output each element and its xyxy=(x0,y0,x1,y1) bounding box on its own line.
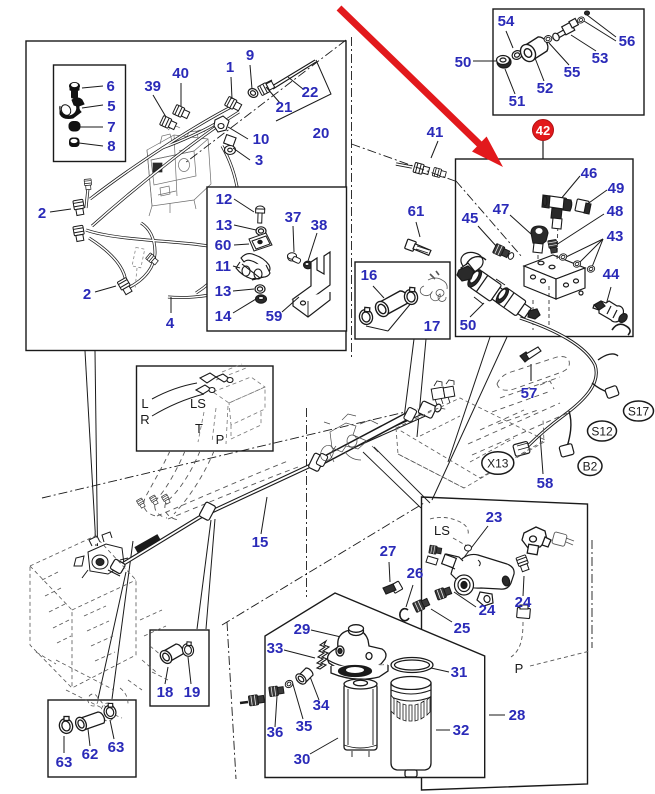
svg-text:23: 23 xyxy=(486,509,503,526)
svg-text:5: 5 xyxy=(107,98,115,115)
svg-text:2: 2 xyxy=(38,205,46,222)
svg-text:54: 54 xyxy=(498,13,515,30)
svg-text:50: 50 xyxy=(460,317,477,334)
svg-text:51: 51 xyxy=(509,93,526,110)
svg-text:LS: LS xyxy=(190,396,206,411)
svg-text:47: 47 xyxy=(493,201,510,218)
svg-text:59: 59 xyxy=(266,308,283,325)
svg-text:40: 40 xyxy=(172,65,189,82)
svg-text:58: 58 xyxy=(537,475,554,492)
svg-text:27: 27 xyxy=(380,543,397,560)
svg-text:3: 3 xyxy=(255,152,263,169)
svg-text:L: L xyxy=(141,396,148,411)
svg-text:49: 49 xyxy=(608,180,625,197)
svg-text:38: 38 xyxy=(311,217,328,234)
svg-text:20: 20 xyxy=(313,125,330,142)
svg-text:4: 4 xyxy=(166,315,175,332)
svg-text:60: 60 xyxy=(215,237,232,254)
svg-text:41: 41 xyxy=(427,124,444,141)
svg-text:16: 16 xyxy=(361,267,378,284)
svg-text:57: 57 xyxy=(521,385,538,402)
svg-text:15: 15 xyxy=(252,534,269,551)
svg-text:X13: X13 xyxy=(487,457,509,471)
svg-text:39: 39 xyxy=(144,78,161,95)
svg-text:S17: S17 xyxy=(628,405,650,419)
svg-text:9: 9 xyxy=(246,47,254,64)
svg-text:28: 28 xyxy=(509,707,526,724)
svg-text:34: 34 xyxy=(313,697,330,714)
svg-text:62: 62 xyxy=(82,746,99,763)
svg-text:LS: LS xyxy=(434,523,450,538)
svg-text:17: 17 xyxy=(424,318,441,335)
svg-text:S12: S12 xyxy=(591,425,613,439)
svg-text:63: 63 xyxy=(56,754,73,771)
svg-text:19: 19 xyxy=(184,684,201,701)
svg-text:32: 32 xyxy=(453,722,470,739)
svg-text:36: 36 xyxy=(267,724,284,741)
svg-text:1: 1 xyxy=(226,59,234,76)
svg-text:B2: B2 xyxy=(583,460,598,474)
svg-text:46: 46 xyxy=(581,165,598,182)
svg-text:7: 7 xyxy=(107,119,115,136)
svg-text:24: 24 xyxy=(515,594,532,611)
svg-text:11: 11 xyxy=(215,258,231,275)
svg-text:18: 18 xyxy=(157,684,174,701)
svg-text:P: P xyxy=(515,661,524,676)
svg-text:2: 2 xyxy=(83,286,91,303)
svg-text:P: P xyxy=(216,432,225,447)
svg-text:21: 21 xyxy=(276,99,293,116)
svg-text:25: 25 xyxy=(454,620,471,637)
svg-text:33: 33 xyxy=(267,640,284,657)
svg-text:50: 50 xyxy=(455,54,472,71)
svg-text:24: 24 xyxy=(479,602,496,619)
svg-text:56: 56 xyxy=(619,33,636,50)
svg-text:44: 44 xyxy=(603,266,620,283)
svg-text:30: 30 xyxy=(294,751,311,768)
svg-text:63: 63 xyxy=(108,739,125,756)
svg-text:48: 48 xyxy=(607,203,624,220)
svg-text:R: R xyxy=(140,412,149,427)
svg-text:13: 13 xyxy=(215,283,232,300)
svg-text:26: 26 xyxy=(407,565,424,582)
svg-text:29: 29 xyxy=(294,621,311,638)
svg-text:6: 6 xyxy=(107,78,115,95)
svg-text:13: 13 xyxy=(216,217,233,234)
svg-text:8: 8 xyxy=(107,138,115,155)
svg-text:31: 31 xyxy=(451,664,468,681)
svg-text:10: 10 xyxy=(253,131,270,148)
svg-text:42: 42 xyxy=(536,123,550,138)
svg-text:37: 37 xyxy=(285,209,302,226)
svg-text:22: 22 xyxy=(302,84,319,101)
svg-text:14: 14 xyxy=(215,308,232,325)
svg-text:45: 45 xyxy=(462,210,479,227)
svg-text:52: 52 xyxy=(537,80,554,97)
svg-text:53: 53 xyxy=(592,50,609,67)
svg-text:T: T xyxy=(195,421,203,436)
svg-text:43: 43 xyxy=(607,228,624,245)
svg-text:55: 55 xyxy=(564,64,581,81)
svg-text:35: 35 xyxy=(296,718,313,735)
svg-text:61: 61 xyxy=(408,203,425,220)
svg-text:12: 12 xyxy=(216,191,233,208)
